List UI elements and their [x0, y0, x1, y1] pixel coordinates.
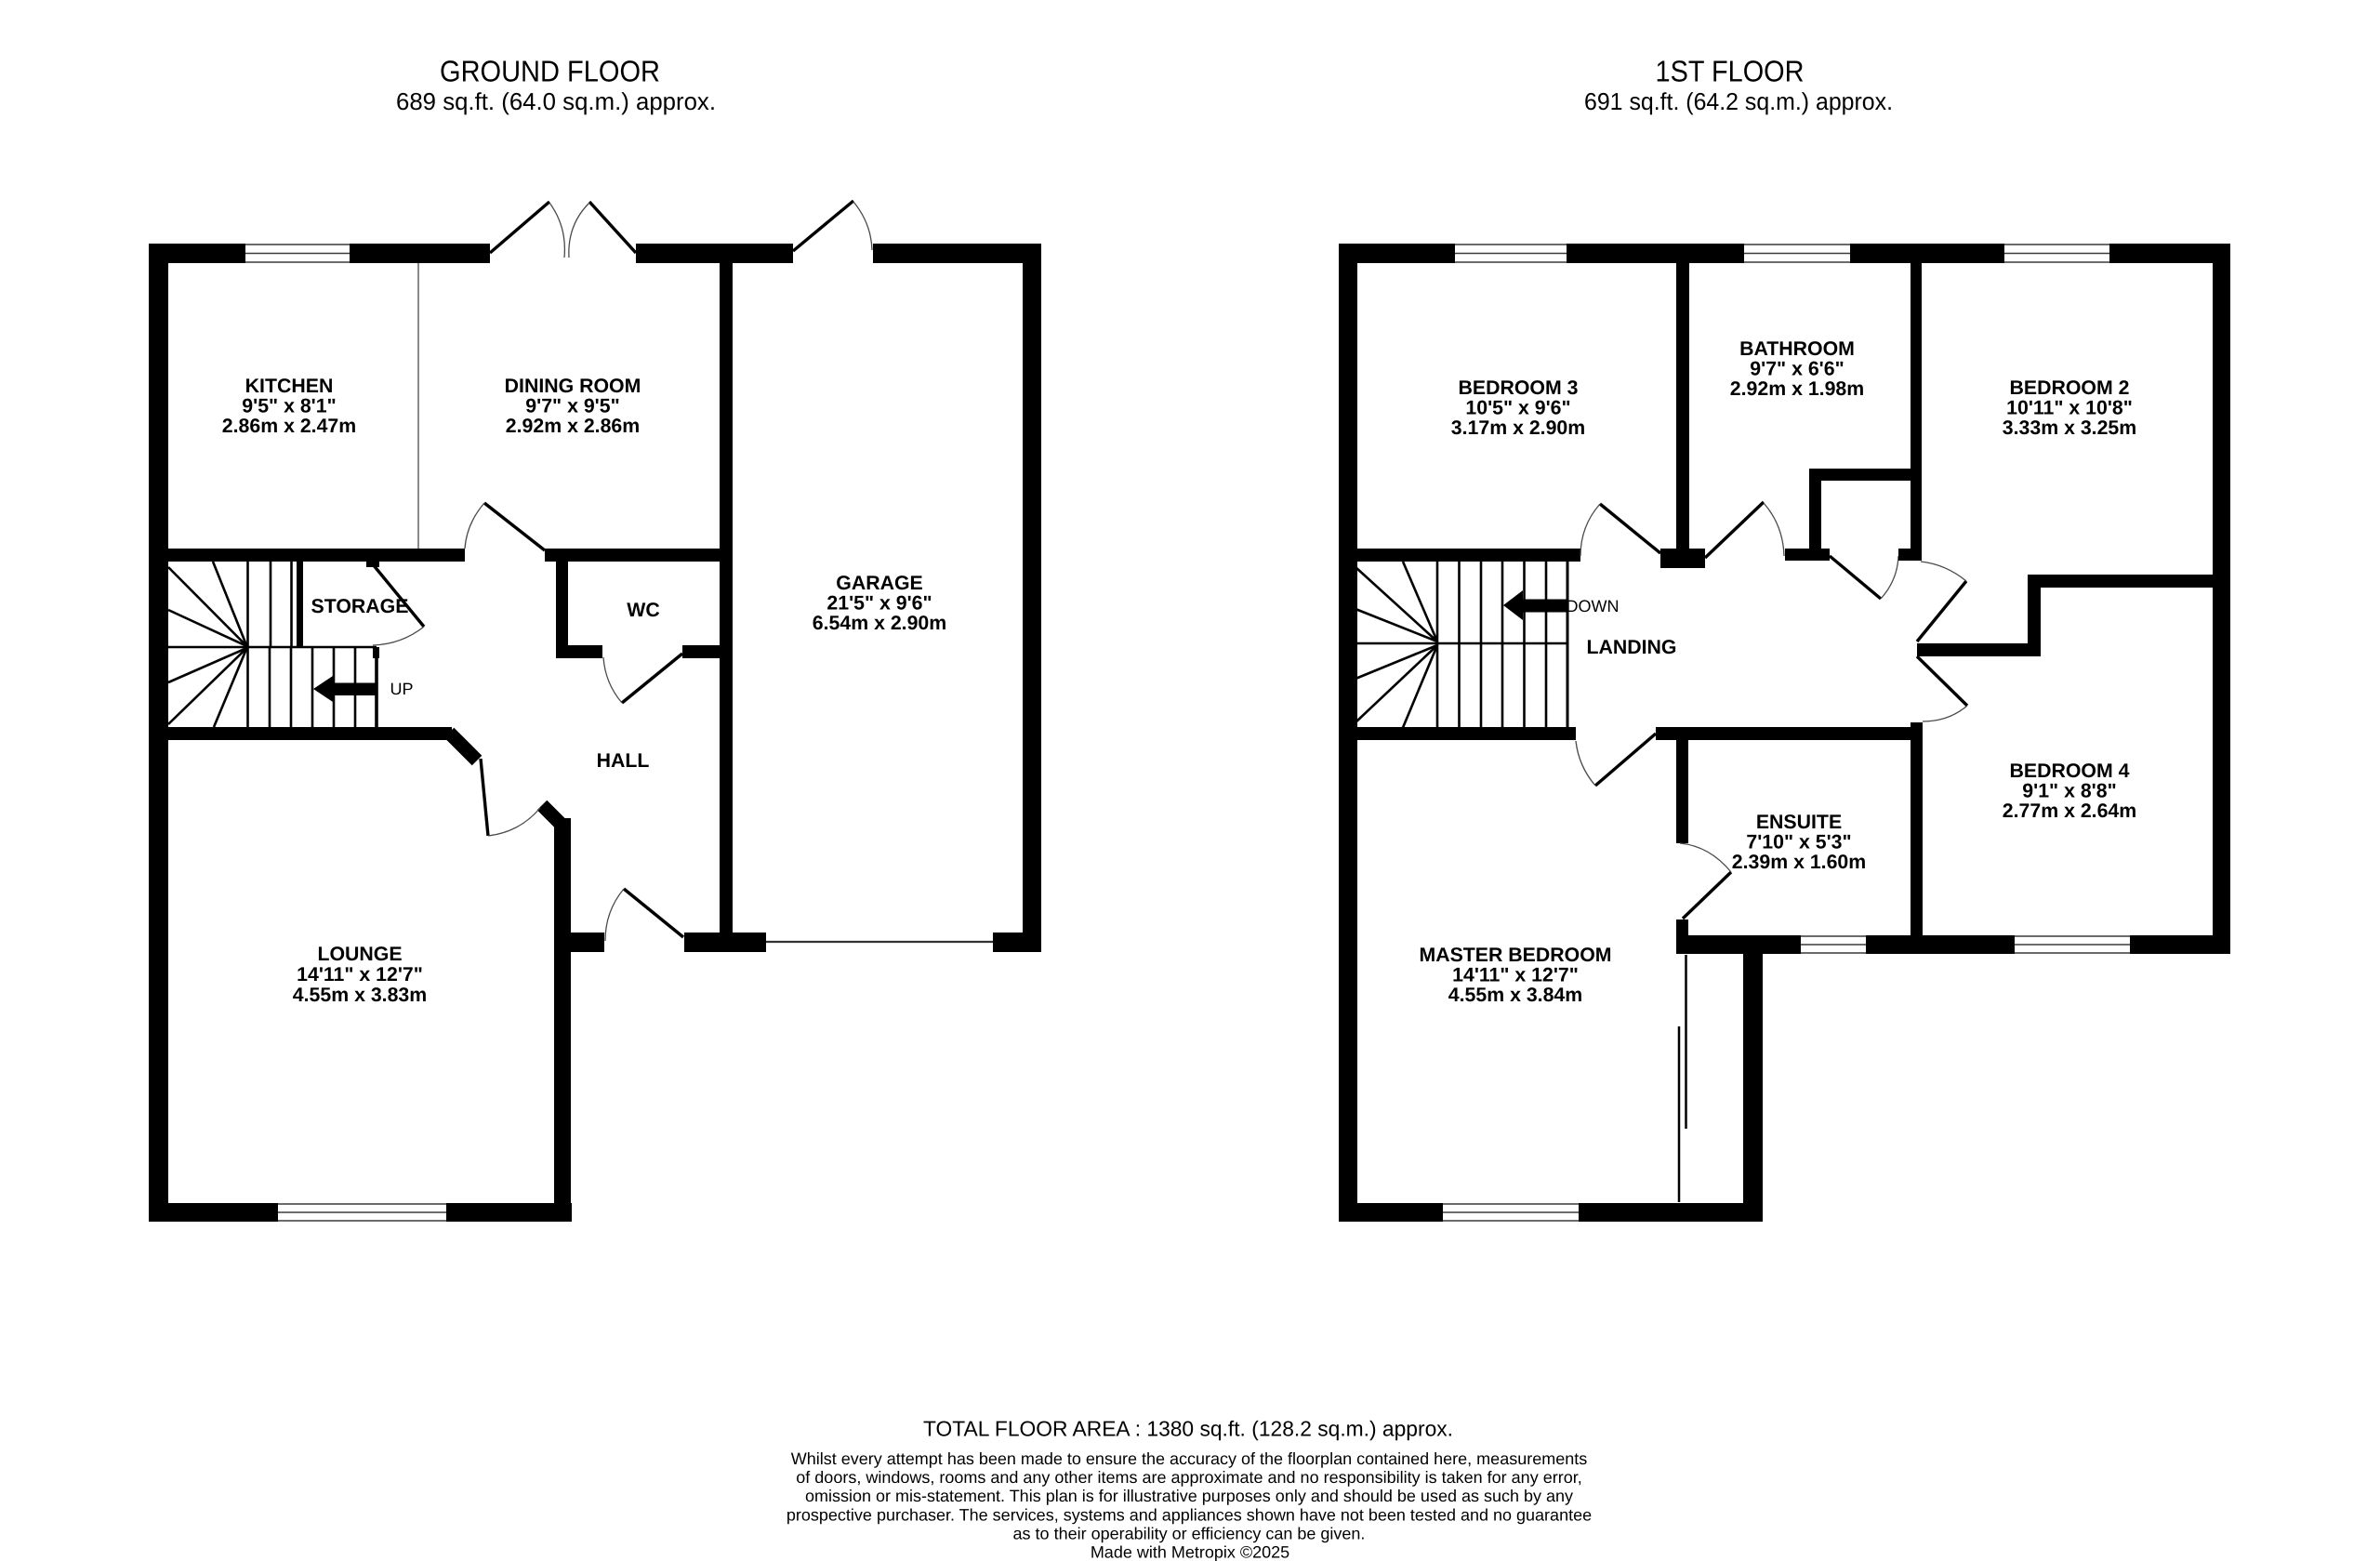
svg-text:2.92m x 1.98m: 2.92m x 1.98m — [1730, 377, 1864, 400]
svg-text:HALL: HALL — [597, 749, 650, 772]
svg-text:14'11" x 12'7": 14'11" x 12'7" — [297, 963, 423, 986]
svg-text:689 sq.ft. (64.0 sq.m.) approx: 689 sq.ft. (64.0 sq.m.) approx. — [396, 87, 716, 115]
svg-text:9'7" x 6'6": 9'7" x 6'6" — [1750, 358, 1844, 380]
svg-text:6.54m x 2.90m: 6.54m x 2.90m — [813, 612, 946, 634]
svg-text:BATHROOM: BATHROOM — [1739, 337, 1855, 360]
svg-text:2.39m x 1.60m: 2.39m x 1.60m — [1732, 851, 1866, 873]
svg-text:Whilst every attempt has been: Whilst every attempt has been made to en… — [791, 1449, 1587, 1468]
svg-text:BEDROOM 3: BEDROOM 3 — [1459, 377, 1579, 399]
svg-text:MASTER BEDROOM: MASTER BEDROOM — [1419, 944, 1611, 966]
svg-text:of doors, windows, rooms and a: of doors, windows, rooms and any other i… — [796, 1468, 1581, 1487]
svg-text:LANDING: LANDING — [1586, 636, 1676, 658]
svg-text:WC: WC — [627, 599, 659, 621]
svg-text:Made with Metropix ©2025: Made with Metropix ©2025 — [1091, 1543, 1289, 1561]
svg-text:KITCHEN: KITCHEN — [245, 375, 334, 397]
svg-text:7'10" x 5'3": 7'10" x 5'3" — [1746, 831, 1851, 853]
svg-text:1ST FLOOR: 1ST FLOOR — [1656, 55, 1805, 88]
svg-text:omission or mis-statement. Thi: omission or mis-statement. This plan is … — [805, 1487, 1573, 1505]
svg-text:10'5" x 9'6": 10'5" x 9'6" — [1465, 397, 1570, 419]
svg-text:LOUNGE: LOUNGE — [317, 943, 402, 965]
svg-text:10'11" x 10'8": 10'11" x 10'8" — [2006, 397, 2133, 419]
svg-text:21'5" x 9'6": 21'5" x 9'6" — [826, 592, 932, 615]
svg-text:2.86m x 2.47m: 2.86m x 2.47m — [222, 415, 356, 437]
svg-text:prospective purchaser. The ser: prospective purchaser. The services, sys… — [787, 1505, 1592, 1524]
svg-text:STORAGE: STORAGE — [311, 595, 409, 617]
svg-text:2.92m x 2.86m: 2.92m x 2.86m — [506, 415, 640, 437]
svg-text:DINING ROOM: DINING ROOM — [505, 375, 641, 397]
svg-text:ENSUITE: ENSUITE — [1756, 811, 1842, 833]
svg-text:9'7" x 9'5": 9'7" x 9'5" — [525, 395, 619, 417]
svg-text:DOWN: DOWN — [1567, 597, 1620, 615]
svg-text:2.77m x 2.64m: 2.77m x 2.64m — [2003, 800, 2136, 822]
svg-text:3.17m x 2.90m: 3.17m x 2.90m — [1451, 417, 1585, 439]
svg-text:GROUND FLOOR: GROUND FLOOR — [440, 55, 660, 88]
svg-text:4.55m x 3.84m: 4.55m x 3.84m — [1448, 984, 1582, 1006]
svg-text:BEDROOM 2: BEDROOM 2 — [2010, 377, 2130, 399]
svg-text:as to their operability or eff: as to their operability or efficiency ca… — [1013, 1524, 1366, 1542]
svg-text:4.55m x 3.83m: 4.55m x 3.83m — [293, 984, 427, 1006]
svg-text:9'1" x 8'8": 9'1" x 8'8" — [2022, 780, 2116, 802]
svg-text:GARAGE: GARAGE — [836, 572, 922, 594]
svg-text:UP: UP — [390, 680, 413, 698]
svg-text:BEDROOM 4: BEDROOM 4 — [2010, 760, 2130, 782]
svg-text:TOTAL FLOOR AREA : 1380 sq.ft.: TOTAL FLOOR AREA : 1380 sq.ft. (128.2 sq… — [923, 1417, 1453, 1441]
svg-text:14'11" x 12'7": 14'11" x 12'7" — [1452, 964, 1579, 986]
svg-text:691 sq.ft. (64.2 sq.m.) approx: 691 sq.ft. (64.2 sq.m.) approx. — [1584, 87, 1893, 115]
svg-text:3.33m x 3.25m: 3.33m x 3.25m — [2003, 417, 2136, 439]
svg-text:9'5" x 8'1": 9'5" x 8'1" — [242, 395, 336, 417]
